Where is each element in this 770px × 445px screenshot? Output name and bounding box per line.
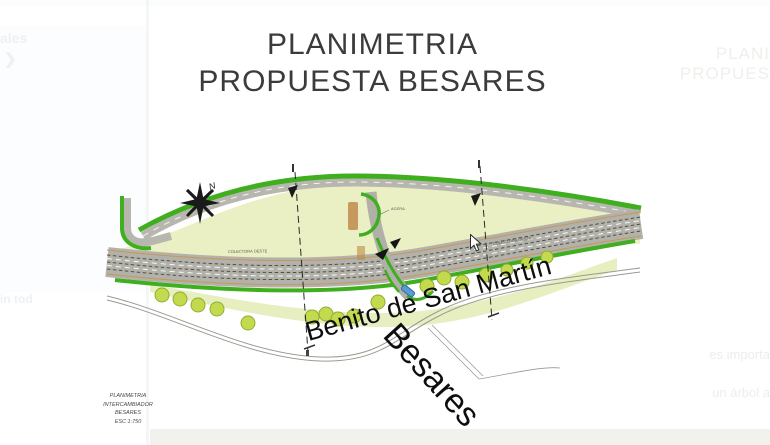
drawing-title-block: PLANIMETRIA INTERCAMBIADOR BESARES ESC 1…	[92, 392, 164, 426]
page-title-line2: PROPUESTA BESARES	[0, 63, 745, 100]
bridge-deck	[348, 202, 358, 230]
title-block-line1: PLANIMETRIA	[92, 392, 164, 401]
slide: ales ❯ in tod PLANI PROPUES es importa u…	[0, 0, 770, 445]
title-block-line3: BESARES	[92, 409, 164, 418]
ghost-text-right-2: un árbol a	[712, 385, 770, 400]
title-block-line4: ESC 1:750	[92, 418, 164, 427]
mouse-cursor-icon	[470, 234, 484, 254]
title-block-line2: INTERCAMBIADOR	[92, 401, 164, 410]
bridge-deck-2	[357, 246, 365, 260]
north-label: N	[208, 180, 218, 192]
ghost-top-band	[0, 0, 770, 6]
road-label-colectora-left: COLECTORA OESTE	[228, 248, 268, 254]
ghost-text-left-mid: in tod	[0, 292, 33, 306]
page-title-line1: PLANIMETRIA	[0, 26, 745, 63]
page-title: PLANIMETRIA PROPUESTA BESARES	[0, 26, 745, 100]
road-label-acera: ACERA	[391, 206, 405, 211]
ghost-text-right-1: es importa	[709, 347, 770, 362]
